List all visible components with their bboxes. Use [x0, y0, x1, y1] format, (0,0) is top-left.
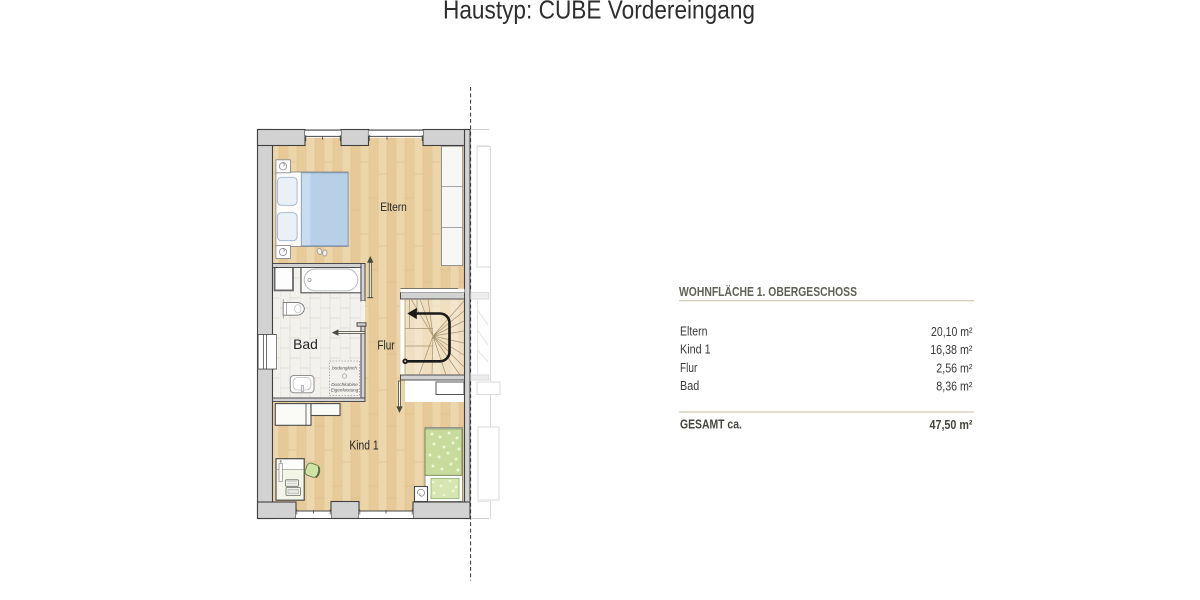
svg-text:Eltern: Eltern — [680, 323, 708, 338]
svg-text:bodengleich: bodengleich — [332, 366, 357, 371]
svg-text:Bad: Bad — [680, 378, 699, 393]
svg-text:16,38 m²: 16,38 m² — [930, 342, 973, 357]
svg-text:Duschkabine: Duschkabine — [331, 382, 358, 387]
svg-text:Flur: Flur — [680, 360, 698, 375]
svg-text:Haustyp: CUBE Vordereingang: Haustyp: CUBE Vordereingang — [443, 0, 755, 24]
svg-text:WOHNFLÄCHE 1. OBERGESCHOSS: WOHNFLÄCHE 1. OBERGESCHOSS — [679, 284, 857, 299]
svg-text:Eltern: Eltern — [380, 200, 407, 214]
svg-text:Kind 1: Kind 1 — [349, 438, 378, 453]
svg-text:Flur: Flur — [377, 339, 394, 353]
svg-text:20,10 m²: 20,10 m² — [931, 324, 973, 339]
svg-text:47,50 m²: 47,50 m² — [930, 417, 974, 432]
svg-text:GESAMT ca.: GESAMT ca. — [680, 417, 742, 432]
svg-text:Eigenleistung: Eigenleistung — [331, 387, 359, 392]
svg-text:Bad: Bad — [293, 336, 318, 352]
svg-text:2,56 m²: 2,56 m² — [936, 361, 973, 376]
svg-text:Kind 1: Kind 1 — [680, 342, 711, 357]
svg-text:8,36 m²: 8,36 m² — [936, 379, 973, 394]
